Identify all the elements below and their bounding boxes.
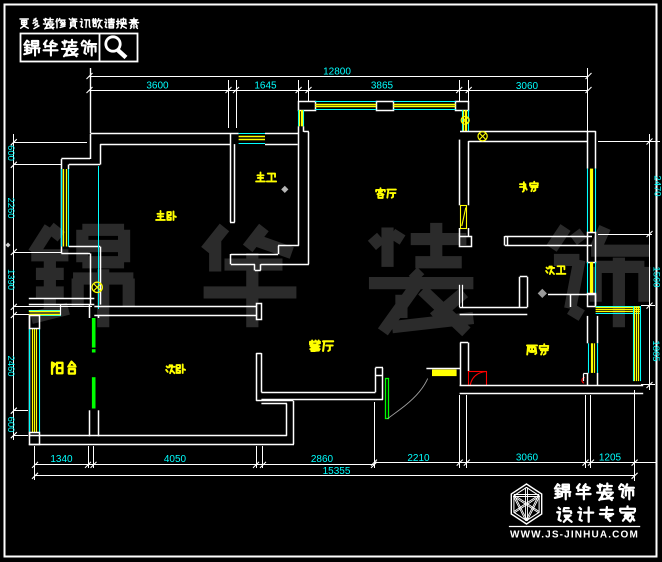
- svg-text:3060: 3060: [516, 452, 539, 463]
- svg-text:4050: 4050: [164, 454, 187, 465]
- svg-text:12800: 12800: [323, 67, 351, 78]
- svg-text:3600: 3600: [146, 81, 169, 92]
- svg-text:2470: 2470: [652, 175, 662, 196]
- svg-text:15355: 15355: [323, 466, 351, 477]
- svg-text:1340: 1340: [50, 454, 73, 465]
- svg-text:2260: 2260: [5, 197, 16, 218]
- svg-text:2860: 2860: [311, 454, 334, 465]
- svg-text:600: 600: [5, 417, 16, 433]
- svg-text:1865: 1865: [650, 340, 661, 361]
- svg-text:WWW.JS-JINHUA.COM: WWW.JS-JINHUA.COM: [510, 530, 639, 541]
- svg-text:2460: 2460: [5, 355, 16, 376]
- svg-text:3060: 3060: [516, 81, 539, 92]
- svg-text:1560: 1560: [651, 266, 662, 287]
- svg-text:1390: 1390: [5, 269, 16, 290]
- svg-text:600: 600: [5, 145, 16, 161]
- svg-text:1205: 1205: [599, 452, 622, 463]
- svg-text:2210: 2210: [407, 453, 430, 464]
- svg-text:3865: 3865: [371, 81, 394, 92]
- svg-text:1645: 1645: [254, 81, 277, 92]
